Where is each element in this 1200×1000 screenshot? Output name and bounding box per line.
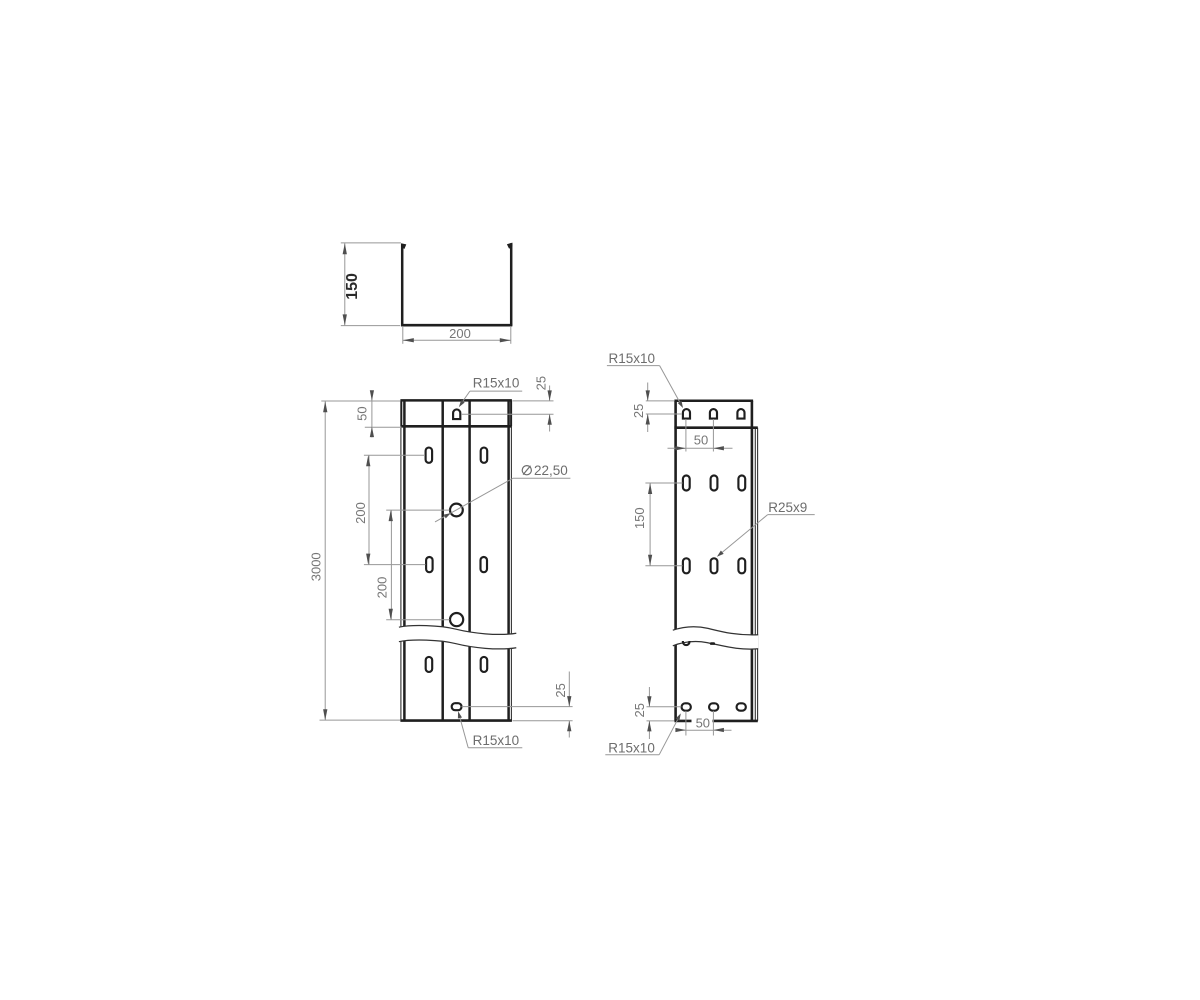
svg-text:R15x10: R15x10 <box>608 740 655 755</box>
svg-text:25: 25 <box>534 376 549 390</box>
svg-text:R15x10: R15x10 <box>609 351 656 366</box>
svg-text:200: 200 <box>353 502 368 524</box>
svg-text:50: 50 <box>694 433 708 448</box>
svg-text:150: 150 <box>632 507 647 529</box>
svg-text:150: 150 <box>344 273 361 300</box>
svg-text:25: 25 <box>631 404 646 418</box>
svg-text:200: 200 <box>449 326 471 341</box>
svg-text:R25x9: R25x9 <box>768 500 807 515</box>
svg-text:R15x10: R15x10 <box>473 733 520 748</box>
svg-text:R15x10: R15x10 <box>473 376 520 391</box>
svg-text:25: 25 <box>632 703 647 717</box>
svg-text:200: 200 <box>375 577 390 599</box>
svg-text:50: 50 <box>696 715 710 730</box>
svg-text:22,50: 22,50 <box>534 463 568 478</box>
svg-text:25: 25 <box>553 683 568 697</box>
svg-text:3000: 3000 <box>308 552 323 581</box>
svg-text:50: 50 <box>355 406 370 420</box>
